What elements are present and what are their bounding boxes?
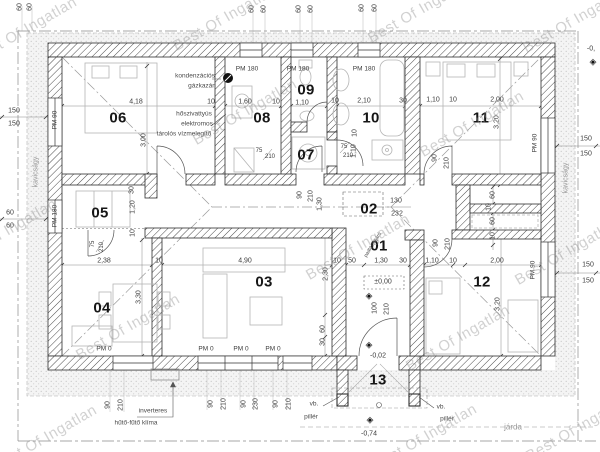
dimension-label: 210	[286, 398, 293, 410]
dimension-label: 1,10	[351, 144, 358, 158]
watermark-text: Best Of Ingatlan	[523, 391, 600, 452]
elevation-marker-icon: ◈	[590, 57, 597, 68]
dimension-label: 75	[90, 241, 96, 248]
dimension-label: 90	[297, 191, 304, 199]
dimension-label: 210	[221, 398, 228, 410]
dimension-label: PM 0	[233, 346, 248, 353]
dimension-label: 210	[265, 154, 275, 160]
dimension-label: 100	[372, 302, 379, 314]
dimension-label: 4,18	[129, 99, 143, 106]
dimension-label: 150	[8, 121, 20, 128]
annotation-label: hőszivattyús	[176, 111, 212, 118]
dimension-label: ±0,00	[374, 279, 391, 286]
watermark-text: Best Of Ingatlan	[303, 210, 413, 283]
room-number-label: 05	[91, 205, 108, 222]
dimension-label: 210	[99, 242, 105, 252]
dimension-label: 1,30	[317, 197, 324, 211]
dimension-label: 90	[241, 400, 248, 408]
dimension-label: 150	[582, 262, 594, 269]
dimension-label: 210	[384, 303, 391, 315]
annotation-label: kavicságy	[33, 157, 40, 188]
annotation-label: gázkazán	[188, 83, 216, 90]
dimension-label: 130	[390, 198, 402, 205]
dimension-label: 210	[308, 190, 315, 202]
watermark-text: Best Of Ingatlan	[73, 290, 183, 363]
dimension-label: 90	[208, 400, 215, 408]
annotation-label: kondenzációs	[175, 73, 215, 80]
watermark-text: Best Of Ingatlan	[365, 0, 475, 47]
watermark-text: Best Of Ingatlan	[0, 401, 100, 452]
dimension-label: 2,00	[490, 258, 504, 265]
dimension-label: 30	[399, 98, 407, 105]
dimension-label: 60	[320, 325, 327, 333]
room-number-label: 10	[362, 110, 379, 127]
room-number-label: 04	[93, 300, 110, 317]
dimension-label: 210	[445, 238, 452, 250]
annotation-label: kavicságy	[563, 163, 570, 194]
dimension-label: 150	[582, 278, 594, 285]
dimension-label: 1,10	[295, 100, 309, 107]
watermark-text: Best Of Ingatlan	[370, 400, 480, 452]
annotation-label: inverteres	[139, 408, 168, 415]
dimension-label: 60	[308, 5, 315, 13]
dimension-label: PM 90	[52, 111, 59, 130]
elevation-marker-icon: ◈	[367, 415, 374, 426]
dimension-label: PM 90	[532, 134, 539, 153]
dimension-label: 30	[320, 338, 327, 346]
dimension-label: 90	[433, 239, 440, 247]
annotation-label: hűtő-fűtő klíma	[115, 420, 158, 427]
dimension-label: PM 0	[198, 346, 213, 353]
dimension-label: -0,02	[370, 353, 386, 360]
watermark-text: Best Of Ingatlan	[0, 0, 80, 67]
watermark-text: Best Of Ingatlan	[403, 301, 513, 374]
dimension-label: 10	[207, 99, 215, 106]
dimension-label: PM 180	[287, 66, 309, 73]
dimension-label: 210	[444, 157, 451, 169]
room-number-label: 03	[255, 274, 272, 291]
dimension-label: 75	[341, 144, 348, 150]
dimension-label: 230	[253, 398, 260, 410]
dimension-label: 150	[580, 151, 592, 158]
dimension-label: 1,30	[374, 258, 388, 265]
dimension-label: -0,74	[361, 431, 377, 438]
dimension-label: 210	[118, 399, 125, 411]
elevation-marker-icon: ◈	[366, 291, 373, 302]
dimension-label: 1,20	[130, 200, 137, 214]
dimension-label: 60	[372, 4, 379, 12]
dimension-label: 150	[8, 108, 20, 115]
dimension-label: 1,10	[426, 97, 440, 104]
dimension-label: 30	[399, 258, 407, 265]
dimension-label: 2,10	[357, 98, 371, 105]
dimension-label: 90	[273, 400, 280, 408]
dimension-label: 10	[331, 98, 339, 105]
dimension-label: 60	[17, 3, 24, 11]
dimension-label: 60	[490, 191, 497, 199]
dimension-label: 90	[105, 401, 112, 409]
dimension-label: PM 0	[265, 346, 280, 353]
dimension-label: 60	[359, 4, 366, 12]
annotation-label: vb.	[310, 401, 319, 408]
dimension-label: 10	[449, 97, 457, 104]
dimension-label: 10	[130, 229, 137, 237]
dimension-label: 1,10	[425, 258, 439, 265]
dimension-label: 10	[449, 258, 457, 265]
dimension-label: PM 180	[236, 66, 258, 73]
dimension-label: 60	[296, 5, 303, 13]
dimension-label: 3,30	[136, 290, 143, 304]
dimension-label: 10	[155, 258, 163, 265]
dimension-label: -0,	[587, 46, 595, 53]
dimension-label: 10	[352, 129, 359, 137]
dimension-label: 150	[580, 136, 592, 143]
dimension-label: 4,90	[238, 258, 252, 265]
dimension-label: 2,38	[97, 258, 111, 265]
dimension-label: 10	[486, 203, 493, 211]
room-number-label: 07	[297, 147, 314, 164]
annotation-label: vb.	[437, 404, 446, 411]
room-number-label: 13	[369, 372, 386, 389]
annotation-label: pillér	[304, 414, 318, 421]
dimension-label: PM 180	[353, 66, 375, 73]
dimension-label: 30	[129, 186, 136, 194]
dimension-label: 60	[27, 3, 34, 11]
floor-plan-page: 060809101107020103040512134,18101,60101,…	[0, 0, 600, 452]
label-layer: 060809101107020103040512134,18101,60101,…	[0, 0, 600, 452]
watermark-text: Best Of Ingatlan	[0, 195, 60, 268]
annotation-label: járda	[504, 423, 522, 432]
room-number-label: 06	[109, 110, 126, 127]
elevation-marker-icon: ◈	[366, 340, 373, 351]
room-number-label: 12	[473, 274, 490, 291]
dimension-label: 60	[490, 217, 497, 225]
dimension-label: 10	[490, 232, 497, 240]
dimension-label: 3,00	[141, 133, 148, 147]
dimension-label: 75	[256, 148, 263, 154]
dimension-label: 60	[6, 210, 14, 217]
room-number-label: 02	[360, 201, 377, 218]
